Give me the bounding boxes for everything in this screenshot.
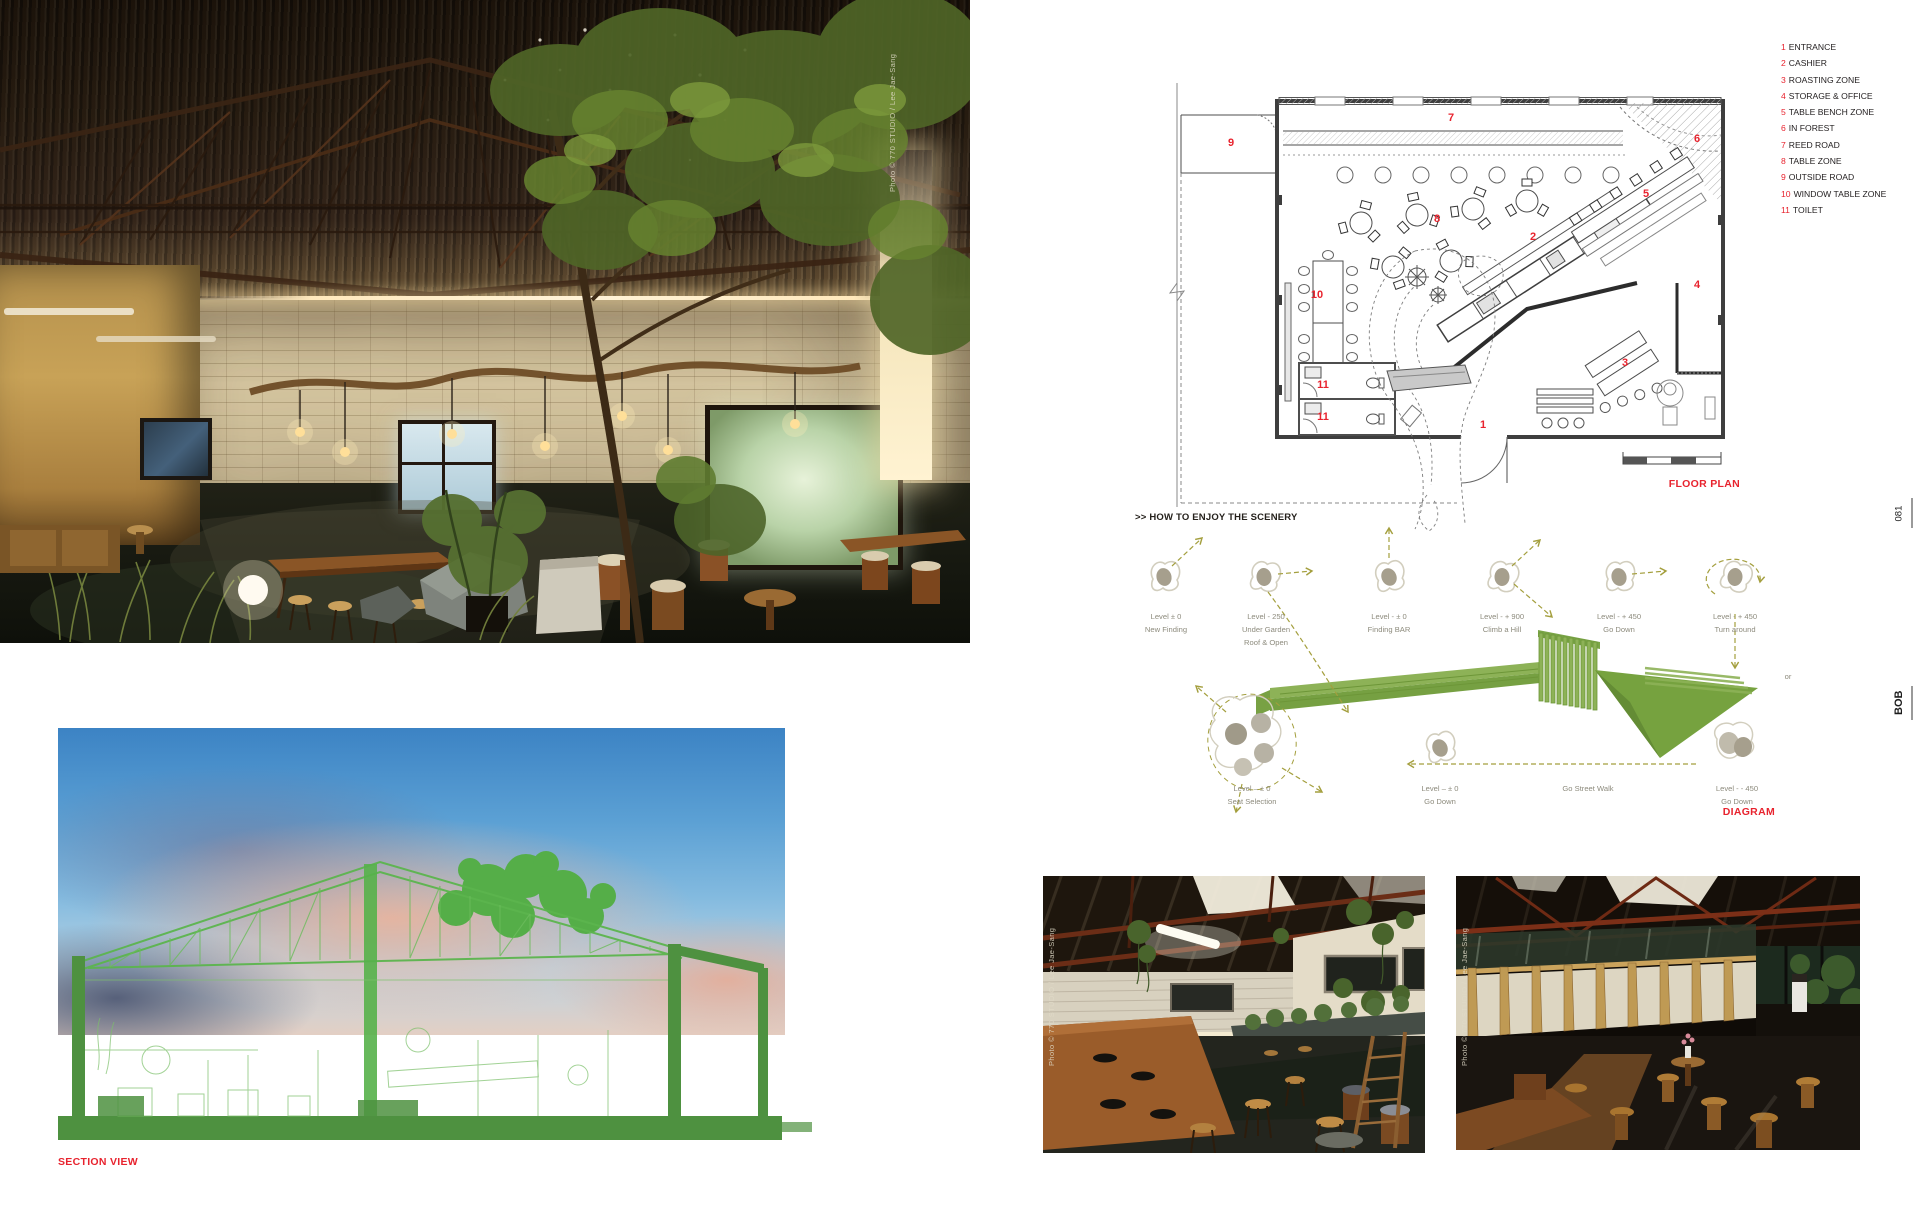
plan-marker: 3 [1622, 357, 1628, 369]
diagram-label: Level - ± 0Finding BAR [1334, 610, 1444, 636]
bottom-photo-1-illustration [1043, 876, 1425, 1153]
diagram-label: Level - + 450Turn around [1680, 610, 1790, 636]
orb-light [223, 560, 283, 620]
photo-credit: Photo © 770 STUDIO / Lee Jae-Sang [1460, 928, 1469, 1066]
section-view-label: SECTION VIEW [58, 1156, 138, 1168]
plan-marker: 10 [1311, 289, 1323, 301]
bottom-photo-2-illustration [1456, 876, 1860, 1150]
legend-item: 5TABLE BENCH ZONE [1781, 107, 1920, 123]
plan-marker: 11 [1317, 411, 1329, 423]
diagram-label-title: DIAGRAM [1690, 806, 1775, 818]
legend-item: 4STORAGE & OFFICE [1781, 91, 1920, 107]
bottom-photo-2: Photo © 770 STUDIO / Lee Jae-Sang [1456, 876, 1860, 1150]
floor-plan-legend: 1ENTRANCE 2CASHIER 3ROASTING ZONE 4STORA… [1781, 42, 1920, 221]
diagram-label: Level – ± 0Seat Selection [1197, 782, 1307, 808]
photo-credit: Photo © 770 STUDIO / Lee Jae-Sang [888, 54, 897, 192]
diagram-label: Level ± 0New Finding [1111, 610, 1221, 636]
plan-marker: 7 [1448, 112, 1454, 124]
page-number: 081 [1894, 496, 1905, 522]
section-building [58, 851, 812, 1140]
diagram-label: Level - - 450Go Down [1682, 782, 1792, 808]
scenery-diagram: Level ± 0New Finding Level - 250Under Ga… [1140, 520, 1810, 830]
floor-plan: 9 7 6 5 8 2 10 4 3 1 11 11 [1165, 55, 1765, 535]
legend-item: 7REED ROAD [1781, 140, 1920, 156]
floor-plan-label: FLOOR PLAN [1600, 478, 1740, 490]
legend-item: 10WINDOW TABLE ZONE [1781, 189, 1920, 205]
magazine-name: BOB [1893, 685, 1905, 715]
bottom-photo-1: Photo © 770 STUDIO / Lee Jae-Sang [1043, 876, 1425, 1153]
legend-item: 11TOILET [1781, 205, 1920, 221]
legend-item: 9OUTSIDE ROAD [1781, 172, 1920, 188]
plan-marker: 8 [1434, 213, 1440, 225]
photo-credit: Photo © 770 STUDIO / Lee Jae-Sang [1047, 928, 1056, 1066]
legend-item: 8TABLE ZONE [1781, 156, 1920, 172]
main-photo-foreground [0, 0, 970, 643]
page-number-rule [1911, 498, 1913, 528]
plan-marker: 1 [1480, 419, 1486, 431]
diagram-label: Level - + 900Climb a Hill [1447, 610, 1557, 636]
main-photo: Photo © 770 STUDIO / Lee Jae-Sang [0, 0, 970, 643]
diagram-label: Level – ± 0Go Down [1385, 782, 1495, 808]
left-cabinets [0, 525, 153, 573]
floor-plan-drawing [1165, 55, 1765, 535]
hanging-branch [250, 365, 860, 392]
plan-marker: 2 [1530, 231, 1536, 243]
plan-marker: 6 [1694, 133, 1700, 145]
section-drawing [58, 850, 818, 1162]
plan-marker: 5 [1643, 188, 1649, 200]
plan-marker: 9 [1228, 137, 1234, 149]
legend-item: 6IN FOREST [1781, 123, 1920, 139]
magazine-name-rule [1911, 686, 1913, 720]
green-street-shape [1256, 630, 1758, 758]
diagram-label: Level - + 450Go Down [1564, 610, 1674, 636]
diagram-label: Level - 250Under GardenRoof & Open [1211, 610, 1321, 649]
legend-item: 2CASHIER [1781, 58, 1920, 74]
plan-marker: 4 [1694, 279, 1700, 291]
diagram-label: Go Street Walk [1533, 782, 1643, 795]
or-connector: or [1773, 670, 1803, 683]
legend-item: 3ROASTING ZONE [1781, 75, 1920, 91]
legend-item: 1ENTRANCE [1781, 42, 1920, 58]
plan-marker: 11 [1317, 379, 1329, 391]
magazine-spread: Photo © 770 STUDIO / Lee Jae-Sang [0, 0, 1920, 1206]
